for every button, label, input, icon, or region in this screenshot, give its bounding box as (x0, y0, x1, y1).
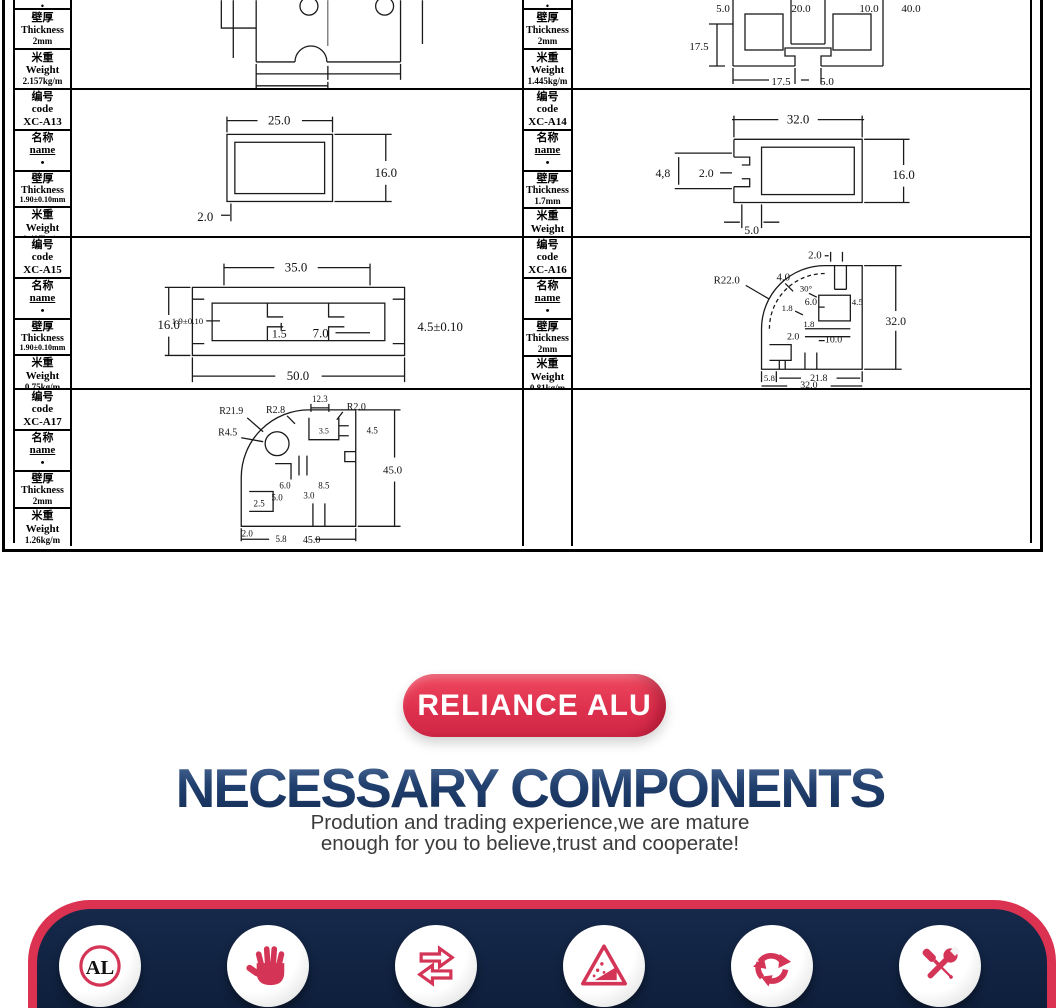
code-cell: 编号 code XC-A15 (15, 238, 70, 279)
svg-text:20.0: 20.0 (791, 3, 811, 15)
svg-text:2.0: 2.0 (787, 332, 799, 343)
footer-band: AL (28, 900, 1056, 1008)
svg-text:7.0: 7.0 (313, 327, 329, 341)
feature-icons-row: AL (37, 909, 1047, 1007)
brand-badge-label: RELIANCE ALU (417, 689, 651, 723)
profile-drawing-xc-a17: R21.9 R2.8 12.3 R2.0 R4.5 3.5 4.5 6.0 8.… (72, 390, 522, 546)
weight-cell: 米重 Weight 1.445kg/m (524, 50, 571, 88)
warning-triangle-icon (575, 937, 633, 995)
subtitle-line1: Prodution and trading experience,we are … (0, 813, 1060, 834)
svg-text:16.0: 16.0 (375, 166, 397, 180)
label-column-xc-a16: 编号 code XC-A16 名称 name • 壁厚 Thickness 2m… (522, 236, 571, 388)
code-cell: 编号 code XC-A16 (524, 238, 571, 279)
label-column-xc-a13: 编号 code XC-A13 名称 name • 壁厚 Thickness 1.… (15, 88, 70, 236)
name-cell: 名称 name • (524, 279, 571, 320)
svg-text:1.8: 1.8 (803, 319, 815, 329)
hand-icon (239, 937, 297, 995)
svg-text:8.5: 8.5 (318, 480, 330, 490)
label-column-row4-empty (522, 388, 571, 546)
profile-drawing-xc-a15: 35.0 16.0 1.9±0.10 1.5 7.0 4.5±0.10 50.0 (72, 238, 522, 388)
label-column-xc-a14: 编号 code XC-A14 名称 name • 壁厚 Thickness 1.… (522, 88, 571, 236)
section-subtitle: Prodution and trading experience,we are … (0, 813, 1060, 854)
spec-grid: • 壁厚 Thickness 2mm 米重 Weight 2.157kg/m (15, 0, 1030, 541)
svg-text:2.0: 2.0 (808, 250, 822, 262)
svg-text:3.5: 3.5 (319, 427, 329, 436)
code-cell: 编号 code XC-A13 (15, 90, 70, 131)
drawing-row1-left (70, 0, 522, 88)
svg-text:R2.8: R2.8 (266, 405, 285, 416)
svg-text:16.0: 16.0 (892, 168, 914, 182)
svg-text:32.0: 32.0 (800, 380, 817, 388)
svg-text:50.0: 50.0 (287, 369, 309, 383)
brand-badge: RELIANCE ALU (403, 674, 666, 737)
svg-text:35.0: 35.0 (285, 261, 307, 275)
svg-text:5.0: 5.0 (271, 492, 283, 502)
svg-text:6.0: 6.0 (279, 480, 291, 490)
thickness-cell: 壁厚 Thickness 1.7mm (524, 172, 571, 210)
svg-text:17.5: 17.5 (771, 76, 791, 88)
svg-text:45.0: 45.0 (383, 465, 403, 477)
wrench-icon (923, 943, 962, 982)
thickness-cell: 壁厚 Thickness 1.90±0.10mm (15, 320, 70, 356)
svg-text:17.5: 17.5 (689, 41, 709, 53)
thickness-cell: 壁厚 Thickness 2mm (524, 10, 571, 50)
svg-text:32.0: 32.0 (885, 314, 906, 328)
thickness-cell: 壁厚 Thickness 2mm (15, 472, 70, 510)
name-dot-cell: • (524, 0, 571, 10)
recycle-icon (743, 937, 801, 995)
drawing-row1-right: 5.0 20.0 10.0 40.0 17.5 17.5 5.0 (571, 0, 1030, 88)
svg-text:1.5: 1.5 (272, 327, 287, 341)
product-page: • 壁厚 Thickness 2mm 米重 Weight 2.157kg/m (0, 0, 1060, 1008)
svg-text:4.5: 4.5 (367, 426, 379, 436)
drawing-row4-empty (571, 388, 1030, 546)
profile-spec-table: • 壁厚 Thickness 2mm 米重 Weight 2.157kg/m (2, 0, 1043, 552)
label-column-row1-right: • 壁厚 Thickness 2mm 米重 Weight 1.445kg/m (522, 0, 571, 88)
svg-text:R22.0: R22.0 (714, 274, 741, 286)
footer-band-inner: AL (37, 909, 1047, 1008)
profile-drawing-cut (72, 0, 522, 88)
svg-text:4.5: 4.5 (852, 297, 864, 307)
svg-text:R21.9: R21.9 (219, 406, 243, 417)
svg-text:6.0: 6.0 (805, 297, 817, 308)
name-dot-cell: • (15, 0, 70, 10)
drawing-xc-a15: 35.0 16.0 1.9±0.10 1.5 7.0 4.5±0.10 50.0 (70, 236, 522, 388)
label-column-xc-a15: 编号 code XC-A15 名称 name • 壁厚 Thickness 1.… (15, 236, 70, 388)
svg-text:1.9±0.10: 1.9±0.10 (172, 316, 204, 326)
name-cell: 名称 name • (15, 279, 70, 320)
svg-text:3.0: 3.0 (303, 490, 315, 500)
thickness-cell: 壁厚 Thickness 1.90±0.10mm (15, 172, 70, 208)
feature-circle-transfer (395, 925, 477, 1007)
code-cell: 编号 code XC-A14 (524, 90, 571, 131)
aluminum-al-icon: AL (71, 937, 129, 995)
svg-text:2.5: 2.5 (254, 498, 266, 508)
label-column-row1-left: • 壁厚 Thickness 2mm 米重 Weight 2.157kg/m (15, 0, 70, 88)
svg-text:4.5±0.10: 4.5±0.10 (417, 320, 462, 334)
profile-drawing-4040: 5.0 20.0 10.0 40.0 17.5 17.5 5.0 (573, 0, 1030, 88)
drawing-xc-a16: R22.0 4.0 30° 2.0 1.8 6.0 4.5 1.8 2.0 10… (571, 236, 1030, 388)
svg-text:5.0: 5.0 (820, 76, 834, 88)
svg-text:40.0: 40.0 (901, 3, 921, 15)
feature-circle-hand (227, 925, 309, 1007)
profile-drawing-xc-a14: 32.0 16.0 4,8 2.0 5.0 (573, 90, 1030, 236)
svg-text:10.0: 10.0 (825, 335, 842, 346)
name-cell: 名称 name • (15, 131, 70, 172)
svg-text:32.0: 32.0 (787, 113, 809, 127)
feature-circle-warning (563, 925, 645, 1007)
svg-text:4,8: 4,8 (656, 166, 671, 180)
label-column-xc-a17: 编号 code XC-A17 名称 name • 壁厚 Thickness 2m… (15, 388, 70, 546)
code-cell: 编号 code XC-A17 (15, 390, 70, 431)
drawing-xc-a17: R21.9 R2.8 12.3 R2.0 R4.5 3.5 4.5 6.0 8.… (70, 388, 522, 546)
weight-cell: 米重 Weight 1.26kg/m (15, 509, 70, 546)
svg-text:30°: 30° (800, 283, 813, 293)
svg-text:R2.0: R2.0 (347, 402, 366, 413)
name-cell: 名称 name • (15, 431, 70, 472)
svg-text:2.0: 2.0 (699, 166, 714, 180)
svg-text:R4.5: R4.5 (218, 428, 237, 439)
drawing-xc-a14: 32.0 16.0 4,8 2.0 5.0 (571, 88, 1030, 236)
profile-drawing-xc-a16: R22.0 4.0 30° 2.0 1.8 6.0 4.5 1.8 2.0 10… (573, 238, 1030, 388)
svg-text:25.0: 25.0 (268, 114, 290, 128)
subtitle-line2: enough for you to believe,trust and coop… (0, 834, 1060, 855)
svg-text:AL: AL (86, 957, 114, 979)
svg-text:5.0: 5.0 (744, 223, 759, 236)
feature-circle-recycle (731, 925, 813, 1007)
svg-text:10.0: 10.0 (859, 3, 879, 15)
weight-cell: 米重 Weight 2.157kg/m (15, 50, 70, 88)
thickness-cell: 壁厚 Thickness 2mm (524, 320, 571, 358)
svg-text:5.0: 5.0 (716, 3, 730, 15)
svg-text:2.0: 2.0 (197, 210, 213, 224)
svg-text:45.0: 45.0 (303, 535, 320, 546)
svg-text:12.3: 12.3 (312, 394, 328, 404)
svg-text:5.8: 5.8 (275, 534, 287, 544)
feature-circle-aluminum: AL (59, 925, 141, 1007)
svg-text:2.0: 2.0 (242, 528, 254, 538)
name-cell: 名称 name • (524, 131, 571, 172)
svg-text:1.8: 1.8 (782, 303, 794, 313)
spec-table-inner-border: • 壁厚 Thickness 2mm 米重 Weight 2.157kg/m (13, 0, 1032, 543)
svg-text:4.0: 4.0 (776, 271, 790, 283)
svg-text:5.8: 5.8 (764, 373, 776, 383)
tools-icon (911, 937, 969, 995)
profile-drawing-xc-a13: 25.0 16.0 2.0 (72, 90, 522, 236)
transfer-arrows-icon (407, 937, 465, 995)
drawing-xc-a13: 25.0 16.0 2.0 (70, 88, 522, 236)
feature-circle-tools (899, 925, 981, 1007)
thickness-cell: 壁厚 Thickness 2mm (15, 10, 70, 50)
